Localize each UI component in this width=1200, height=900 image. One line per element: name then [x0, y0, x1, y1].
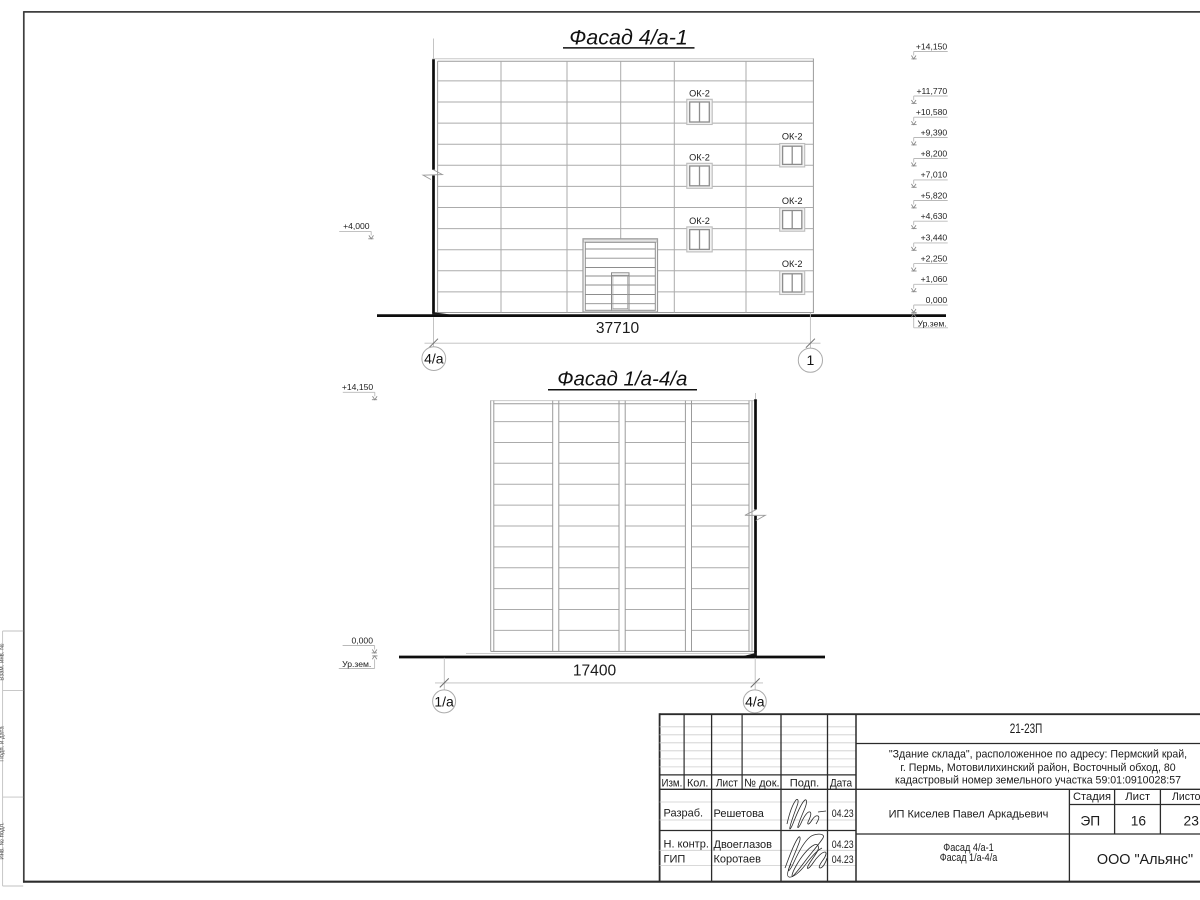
svg-text:Инв. № подл.: Инв. № подл. — [0, 822, 5, 860]
svg-text:Взам. инв. №: Взам. инв. № — [0, 643, 5, 680]
svg-text:№ док.: № док. — [744, 778, 780, 790]
svg-text:+9,390: +9,390 — [921, 127, 948, 137]
svg-text:ОК-2: ОК-2 — [689, 216, 710, 226]
svg-text:0,000: 0,000 — [351, 635, 373, 645]
svg-text:Кол.: Кол. — [687, 778, 709, 790]
svg-text:ООО "Альянс": ООО "Альянс" — [1097, 852, 1193, 868]
svg-text:+8,200: +8,200 — [921, 148, 948, 158]
svg-text:ОК-2: ОК-2 — [689, 152, 710, 162]
svg-text:23: 23 — [1184, 813, 1200, 828]
svg-text:кадастровый номер земельного у: кадастровый номер земельного участка 59:… — [895, 775, 1181, 787]
svg-text:Разраб.: Разраб. — [664, 807, 704, 819]
svg-text:Изм.: Изм. — [662, 778, 683, 790]
svg-text:04.23: 04.23 — [832, 839, 854, 851]
svg-text:04.23: 04.23 — [832, 854, 854, 866]
svg-text:+4,000: +4,000 — [343, 221, 370, 231]
svg-text:16: 16 — [1131, 814, 1147, 829]
svg-text:Ур.зем.: Ур.зем. — [342, 659, 371, 669]
svg-text:4/а: 4/а — [745, 693, 765, 709]
svg-text:ОК-2: ОК-2 — [782, 196, 803, 206]
svg-text:ОК-2: ОК-2 — [689, 88, 710, 98]
svg-text:Двоеглазов: Двоеглазов — [714, 839, 773, 851]
svg-text:1: 1 — [807, 352, 815, 368]
svg-text:Лист: Лист — [1125, 791, 1150, 803]
svg-text:04.23: 04.23 — [832, 808, 854, 820]
svg-text:Ур.зем.: Ур.зем. — [918, 318, 947, 328]
svg-text:+4,630: +4,630 — [921, 211, 948, 221]
svg-text:ГИП: ГИП — [664, 853, 686, 865]
svg-text:Стадия: Стадия — [1073, 791, 1111, 803]
svg-text:Решетова: Решетова — [714, 808, 765, 820]
svg-text:0,000: 0,000 — [926, 295, 948, 305]
svg-text:+1,060: +1,060 — [921, 274, 948, 284]
svg-text:17400: 17400 — [573, 663, 617, 680]
svg-text:Фасад 1/а-4/а: Фасад 1/а-4/а — [557, 367, 687, 390]
svg-text:4/а: 4/а — [424, 351, 444, 367]
svg-text:ОК-2: ОК-2 — [782, 259, 803, 269]
svg-text:+7,010: +7,010 — [921, 170, 948, 180]
svg-text:+10,580: +10,580 — [916, 107, 948, 117]
svg-text:21-23П: 21-23П — [1010, 721, 1043, 736]
svg-text:ИП Киселев Павел Аркадьевич: ИП Киселев Павел Аркадьевич — [889, 809, 1049, 821]
svg-text:Фасад 4/а-1: Фасад 4/а-1 — [569, 26, 688, 50]
svg-text:"Здание склада", расположенное: "Здание склада", расположенное по адресу… — [889, 749, 1187, 761]
svg-text:г. Пермь, Мотовилихинский райо: г. Пермь, Мотовилихинский район, Восточн… — [900, 762, 1175, 774]
svg-text:Дата: Дата — [830, 778, 853, 790]
svg-text:+2,250: +2,250 — [921, 253, 948, 263]
svg-text:Подп.: Подп. — [790, 778, 820, 790]
svg-text:Лист: Лист — [716, 778, 738, 790]
svg-text:ОК-2: ОК-2 — [782, 132, 803, 142]
svg-text:Фасад 1/а-4/а: Фасад 1/а-4/а — [940, 852, 998, 864]
svg-text:+14,150: +14,150 — [916, 41, 948, 51]
svg-text:37710: 37710 — [596, 320, 640, 337]
svg-text:+11,770: +11,770 — [917, 86, 948, 96]
svg-text:+14,150: +14,150 — [342, 382, 374, 392]
svg-text:ЭП: ЭП — [1080, 814, 1100, 829]
svg-text:Подп. и дата: Подп. и дата — [0, 726, 5, 762]
svg-text:Н. контр.: Н. контр. — [664, 839, 709, 851]
svg-text:Коротаев: Коротаев — [714, 854, 762, 866]
svg-text:+5,820: +5,820 — [921, 190, 948, 200]
svg-text:Листов: Листов — [1172, 791, 1200, 803]
svg-text:1/а: 1/а — [434, 693, 454, 709]
svg-text:+3,440: +3,440 — [921, 233, 948, 243]
